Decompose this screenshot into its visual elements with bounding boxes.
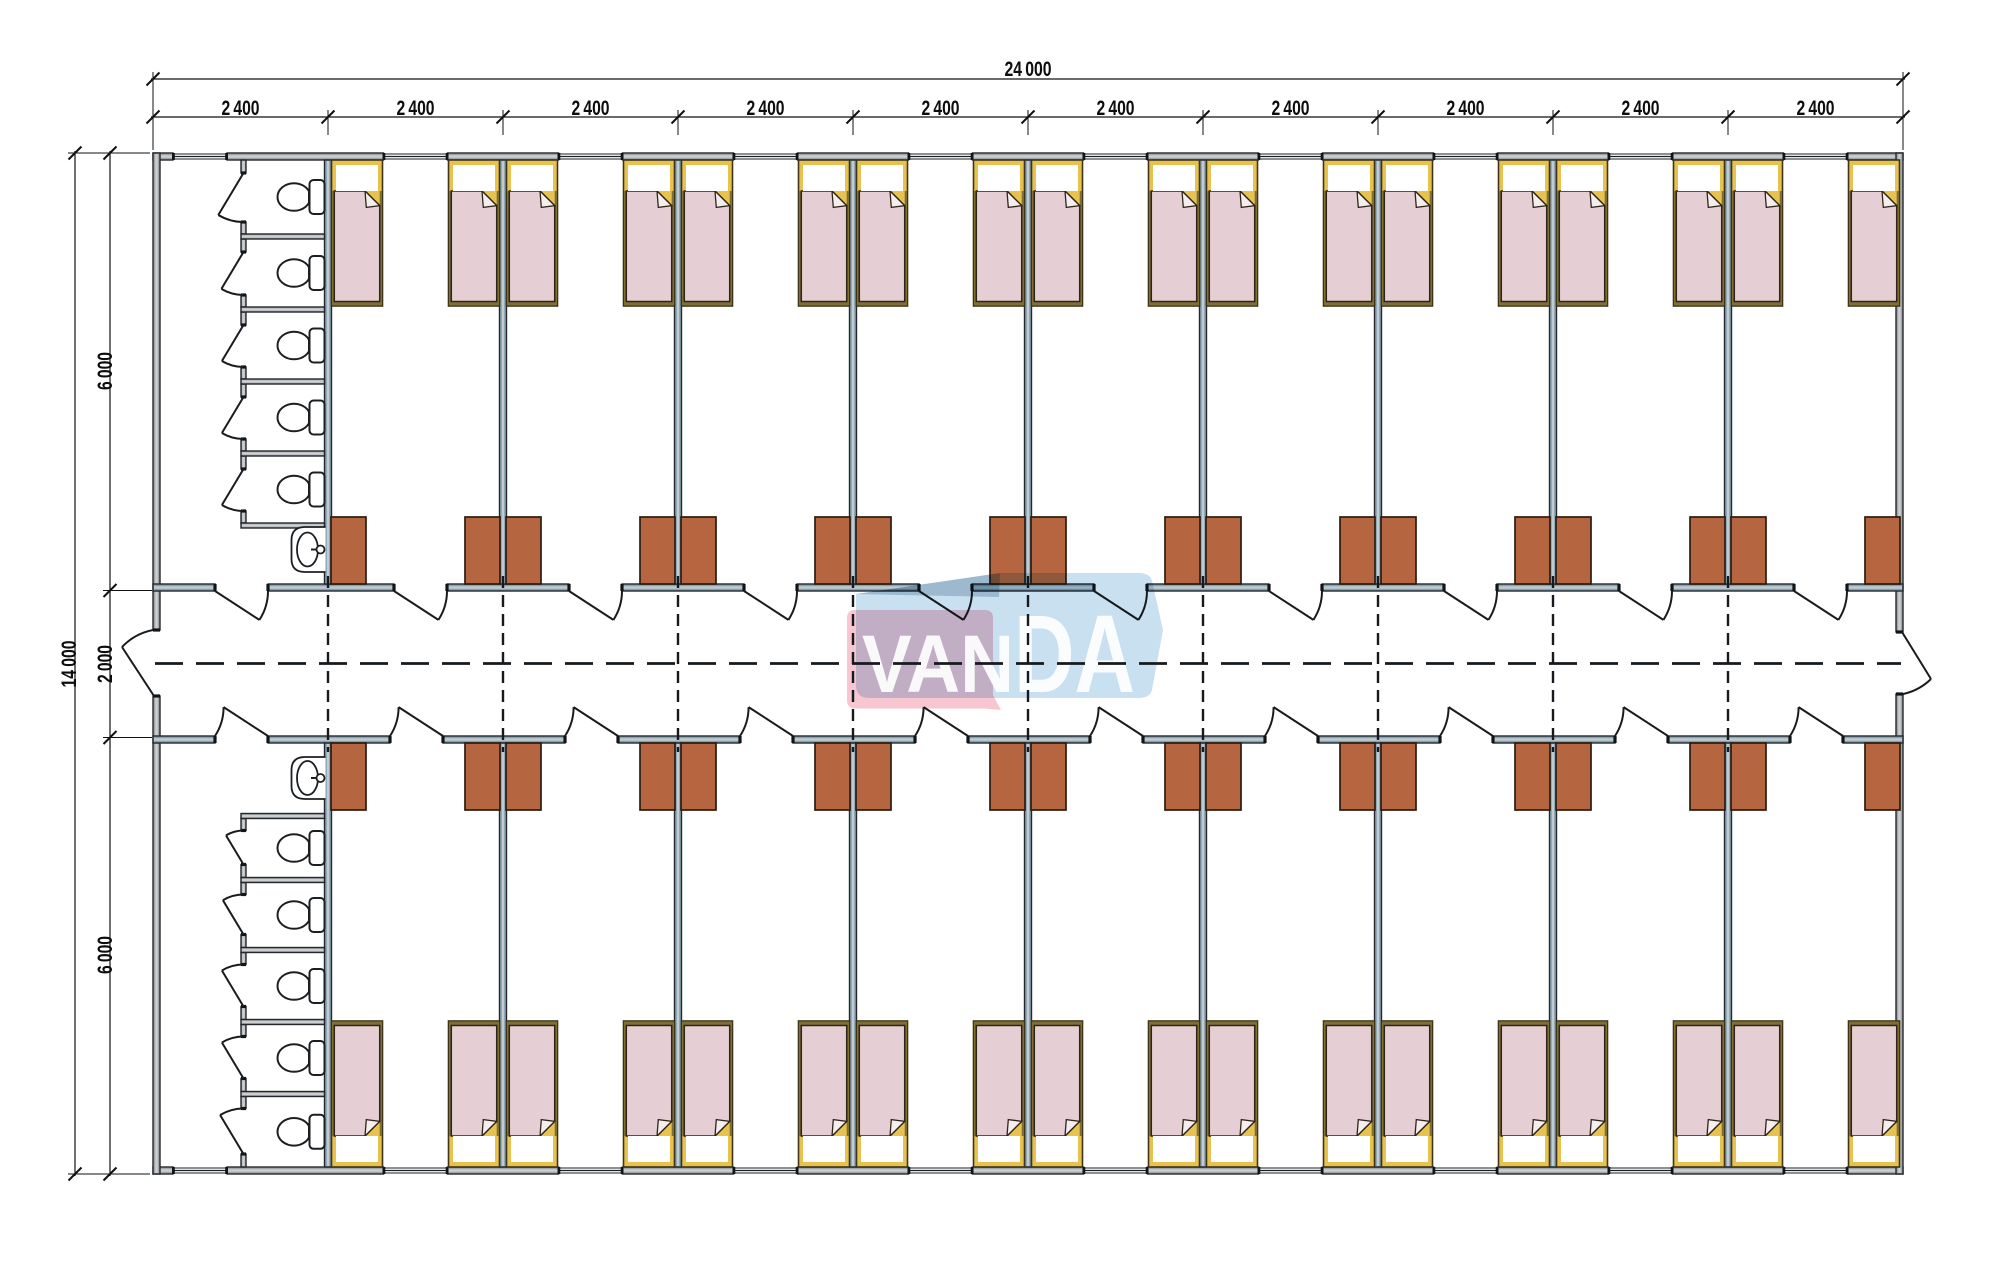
svg-text:DA: DA xyxy=(1014,593,1135,716)
svg-text:2 400: 2 400 xyxy=(1272,97,1310,120)
svg-text:24 000: 24 000 xyxy=(1005,58,1052,81)
svg-text:14 000: 14 000 xyxy=(58,641,81,688)
svg-text:2 400: 2 400 xyxy=(1097,97,1135,120)
svg-text:2 400: 2 400 xyxy=(1622,97,1660,120)
svg-text:2 400: 2 400 xyxy=(572,97,610,120)
svg-text:2 400: 2 400 xyxy=(222,97,260,120)
svg-text:2 400: 2 400 xyxy=(922,97,960,120)
svg-text:2 400: 2 400 xyxy=(747,97,785,120)
svg-text:2 400: 2 400 xyxy=(1797,97,1835,120)
svg-text:2 000: 2 000 xyxy=(94,645,117,683)
svg-text:2 400: 2 400 xyxy=(1447,97,1485,120)
svg-text:6 000: 6 000 xyxy=(94,936,117,974)
svg-text:2 400: 2 400 xyxy=(397,97,435,120)
svg-text:6 000: 6 000 xyxy=(94,352,117,390)
